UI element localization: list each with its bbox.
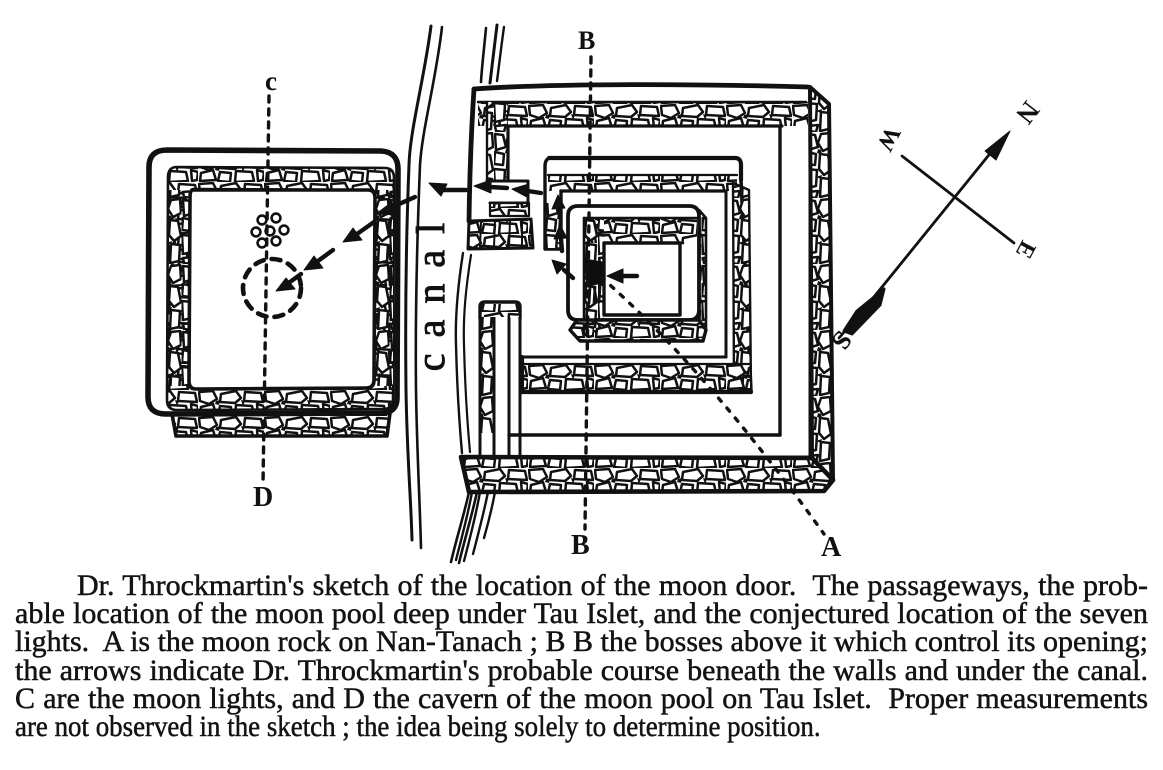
svg-text:B: B <box>578 26 595 55</box>
svg-text:canal: canal <box>408 207 453 371</box>
svg-text:D: D <box>253 482 273 513</box>
svg-text:E: E <box>1010 236 1040 262</box>
svg-text:N: N <box>1010 96 1046 130</box>
svg-text:B: B <box>571 530 590 561</box>
svg-text:W: W <box>871 122 905 155</box>
svg-text:c: c <box>265 66 277 96</box>
svg-text:A: A <box>821 532 842 563</box>
